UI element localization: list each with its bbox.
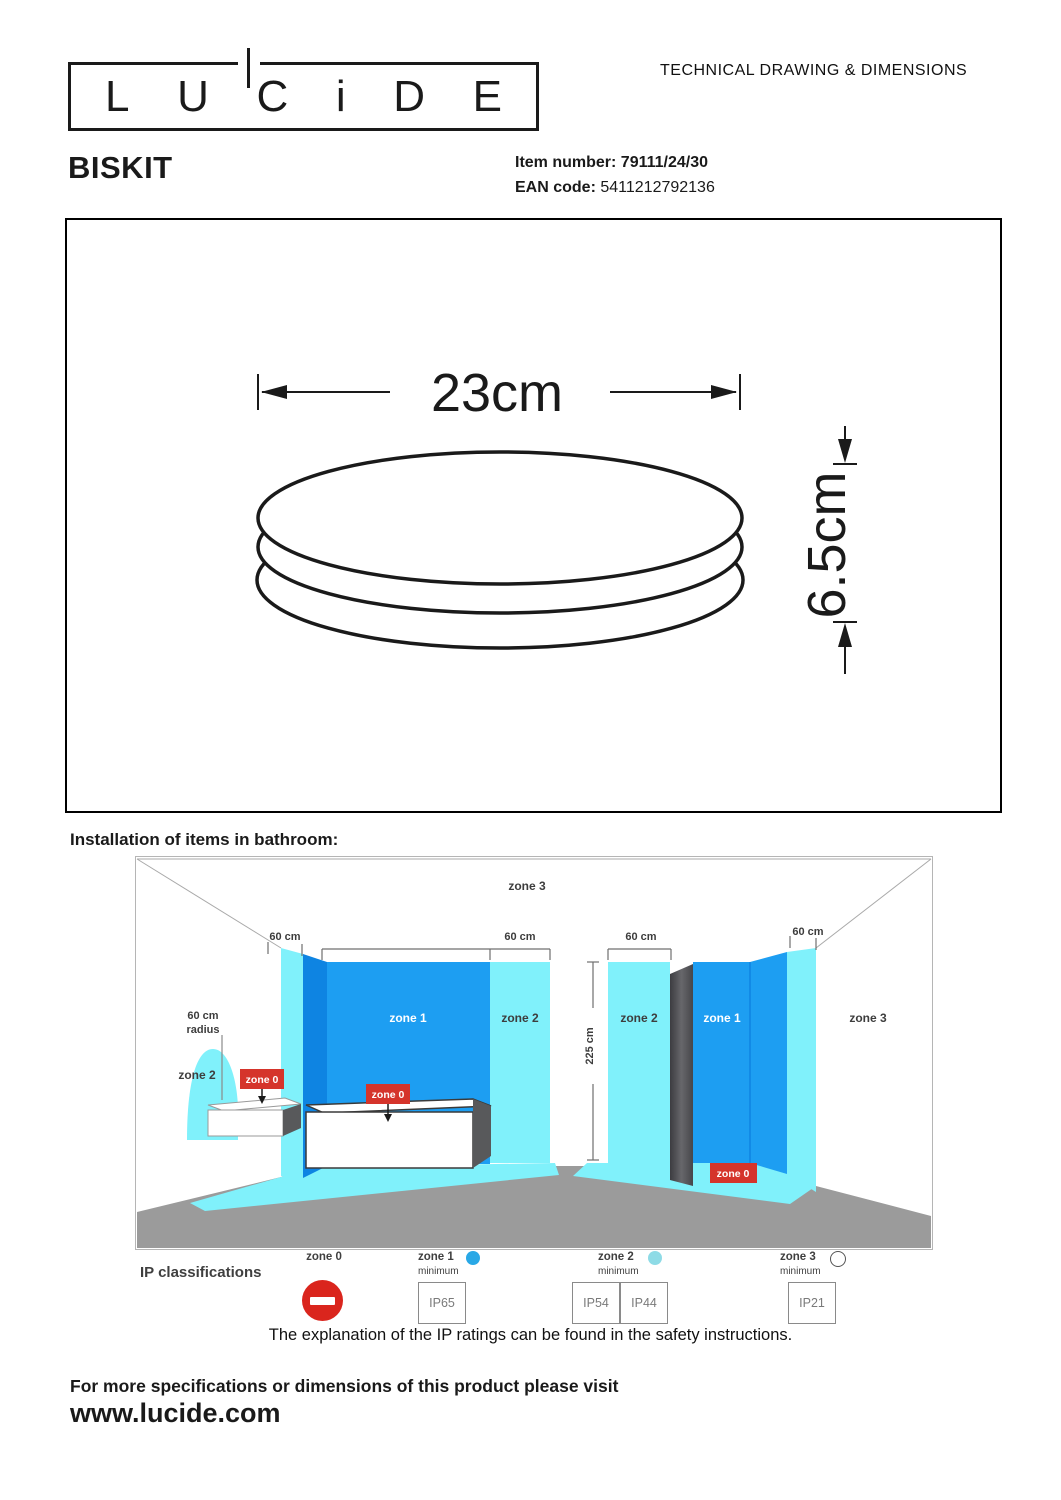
right-zone3-label: zone 3 bbox=[849, 1011, 887, 1025]
ip-note: The explanation of the IP ratings can be… bbox=[0, 1326, 1061, 1345]
bathroom-section-title: Installation of items in bathroom: bbox=[70, 830, 338, 850]
lamp-top-rim bbox=[258, 452, 742, 584]
legend-zone2-minimum: minimum bbox=[598, 1266, 639, 1277]
zone2-dot-icon bbox=[648, 1251, 662, 1265]
svg-text:zone 0: zone 0 bbox=[246, 1074, 279, 1086]
logo-letter: D bbox=[393, 75, 425, 119]
logo-border-gap-bottom bbox=[248, 123, 300, 127]
shower-wall-zone2 bbox=[608, 962, 670, 1163]
logo-stem-mark bbox=[247, 48, 250, 88]
ip-rating-box-ip65: IP65 bbox=[418, 1282, 466, 1324]
logo-letter: U bbox=[177, 75, 209, 119]
zone1-dot-icon bbox=[466, 1251, 480, 1265]
footer-website-link[interactable]: www.lucide.com bbox=[70, 1398, 281, 1429]
document-title: TECHNICAL DRAWING & DIMENSIONS bbox=[660, 62, 967, 80]
shower-zone1-label: zone 1 bbox=[703, 1011, 741, 1025]
tub-zone2-dim-label: 60 cm bbox=[504, 931, 535, 943]
shower-zone0-badge: zone 0 bbox=[710, 1163, 757, 1183]
shower-zone2-label: zone 2 bbox=[620, 1011, 658, 1025]
item-number-row: Item number: 79111/24/30 bbox=[515, 150, 715, 175]
item-number-label: Item number: bbox=[515, 154, 616, 171]
right-wall-zone2-strip bbox=[787, 948, 816, 1192]
left-wall-zone2-strip bbox=[281, 948, 303, 1182]
left-wall-dim-label: 60 cm bbox=[269, 931, 300, 943]
footer-visit-line: For more specifications or dimensions of… bbox=[70, 1376, 618, 1397]
tub-zone1-label: zone 1 bbox=[389, 1011, 427, 1025]
arrowhead-left bbox=[261, 385, 287, 399]
lamp-technical-drawing: 23cm 6.5cm bbox=[65, 218, 998, 809]
logo-letter: i bbox=[336, 75, 346, 119]
arrowhead-down bbox=[838, 439, 852, 463]
ip-classifications-title: IP classifications bbox=[140, 1264, 261, 1281]
ip-rating-box-ip44: IP44 bbox=[620, 1282, 668, 1324]
sink-zone2-label: zone 2 bbox=[178, 1068, 216, 1082]
ceiling-zone-label: zone 3 bbox=[508, 879, 546, 893]
zone3-dot-icon bbox=[830, 1251, 846, 1267]
legend-zone1-label: zone 1 bbox=[418, 1251, 454, 1263]
width-dimension-text: 23cm bbox=[431, 363, 563, 423]
legend-zone2-label: zone 2 bbox=[598, 1251, 634, 1263]
shower-side-zone1 bbox=[750, 952, 787, 1174]
no-entry-bar bbox=[310, 1297, 335, 1305]
legend-zone3-minimum: minimum bbox=[780, 1266, 821, 1277]
radius-label-line2: radius bbox=[186, 1024, 219, 1036]
ean-row: EAN code: 5411212792136 bbox=[515, 175, 715, 200]
legend-zone1-minimum: minimum bbox=[418, 1266, 459, 1277]
technical-sheet-page: L U C i D E TECHNICAL DRAWING & DIMENSIO… bbox=[0, 0, 1061, 1500]
tub-zone2-label: zone 2 bbox=[501, 1011, 539, 1025]
ean-label: EAN code: bbox=[515, 179, 596, 196]
radius-label-line1: 60 cm bbox=[187, 1010, 218, 1022]
ip-rating-box-ip21: IP21 bbox=[788, 1282, 836, 1324]
shower-zone2-dim-label: 60 cm bbox=[625, 931, 656, 943]
product-name: BISKIT bbox=[68, 150, 173, 186]
logo-letter: E bbox=[473, 75, 502, 119]
washbasin bbox=[208, 1098, 301, 1136]
shower-wall-zone1 bbox=[693, 962, 750, 1163]
room-height-dim-label: 225 cm bbox=[584, 1027, 596, 1065]
ceiling-lamp-figure bbox=[257, 452, 743, 648]
right-wall-dim-label: 60 cm bbox=[792, 926, 823, 938]
product-codes: Item number: 79111/24/30 EAN code: 54112… bbox=[515, 150, 715, 200]
ip-rating-box-ip54: IP54 bbox=[572, 1282, 620, 1324]
tub-wall-zone2 bbox=[490, 962, 550, 1163]
legend-zone0-label: zone 0 bbox=[296, 1251, 352, 1263]
arrowhead-right bbox=[711, 385, 737, 399]
svg-text:zone 0: zone 0 bbox=[372, 1089, 405, 1101]
logo-letter: C bbox=[256, 75, 288, 119]
logo-letter: L bbox=[105, 75, 129, 119]
ean-value: 5411212792136 bbox=[600, 179, 715, 196]
item-number-value: 79111/24/30 bbox=[621, 154, 708, 171]
svg-text:zone 0: zone 0 bbox=[717, 1168, 750, 1180]
height-dimension-text: 6.5cm bbox=[797, 471, 857, 618]
lucide-logo: L U C i D E bbox=[68, 62, 539, 131]
bathroom-zones-diagram: 60 cm 60 cm 60 cm 60 cm 225 cm bbox=[135, 856, 933, 1250]
no-entry-icon bbox=[302, 1280, 343, 1321]
shower-panel bbox=[670, 964, 693, 1186]
arrowhead-up bbox=[838, 623, 852, 647]
legend-zone3-label: zone 3 bbox=[780, 1251, 816, 1263]
